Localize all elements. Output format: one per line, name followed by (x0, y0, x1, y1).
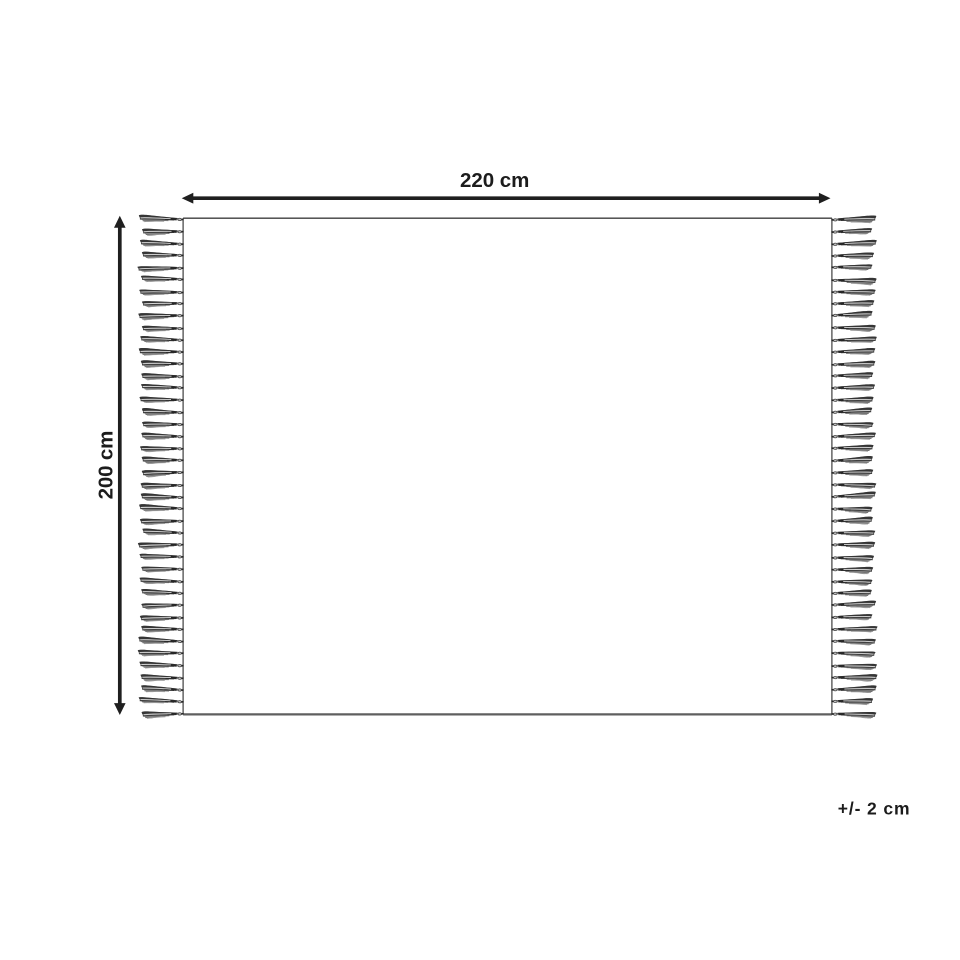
svg-text:+/- 2 cm: +/- 2 cm (838, 799, 910, 819)
svg-text:200 cm: 200 cm (95, 431, 118, 500)
svg-text:220 cm: 220 cm (460, 169, 529, 192)
